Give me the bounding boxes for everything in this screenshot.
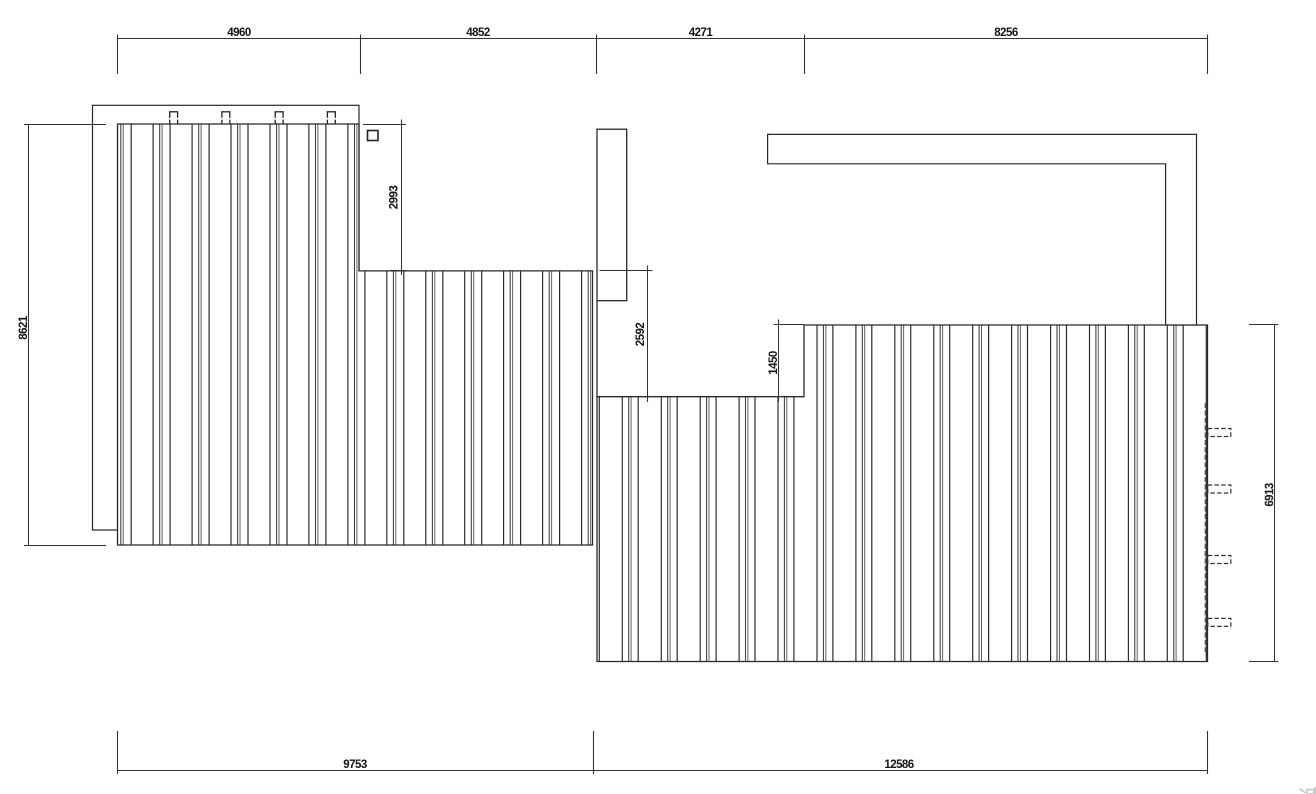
svg-text:2993: 2993 xyxy=(389,186,401,210)
svg-text:4271: 4271 xyxy=(689,27,714,39)
svg-text:1450: 1450 xyxy=(768,351,780,375)
svg-text:2592: 2592 xyxy=(635,323,647,347)
svg-text:8621: 8621 xyxy=(18,315,30,340)
svg-text:9753: 9753 xyxy=(343,759,367,771)
svg-text:4960: 4960 xyxy=(227,27,251,39)
svg-text:8256: 8256 xyxy=(994,27,1018,39)
svg-text:12586: 12586 xyxy=(884,759,913,771)
svg-text:6913: 6913 xyxy=(1264,483,1276,507)
svg-text:4852: 4852 xyxy=(466,27,490,39)
